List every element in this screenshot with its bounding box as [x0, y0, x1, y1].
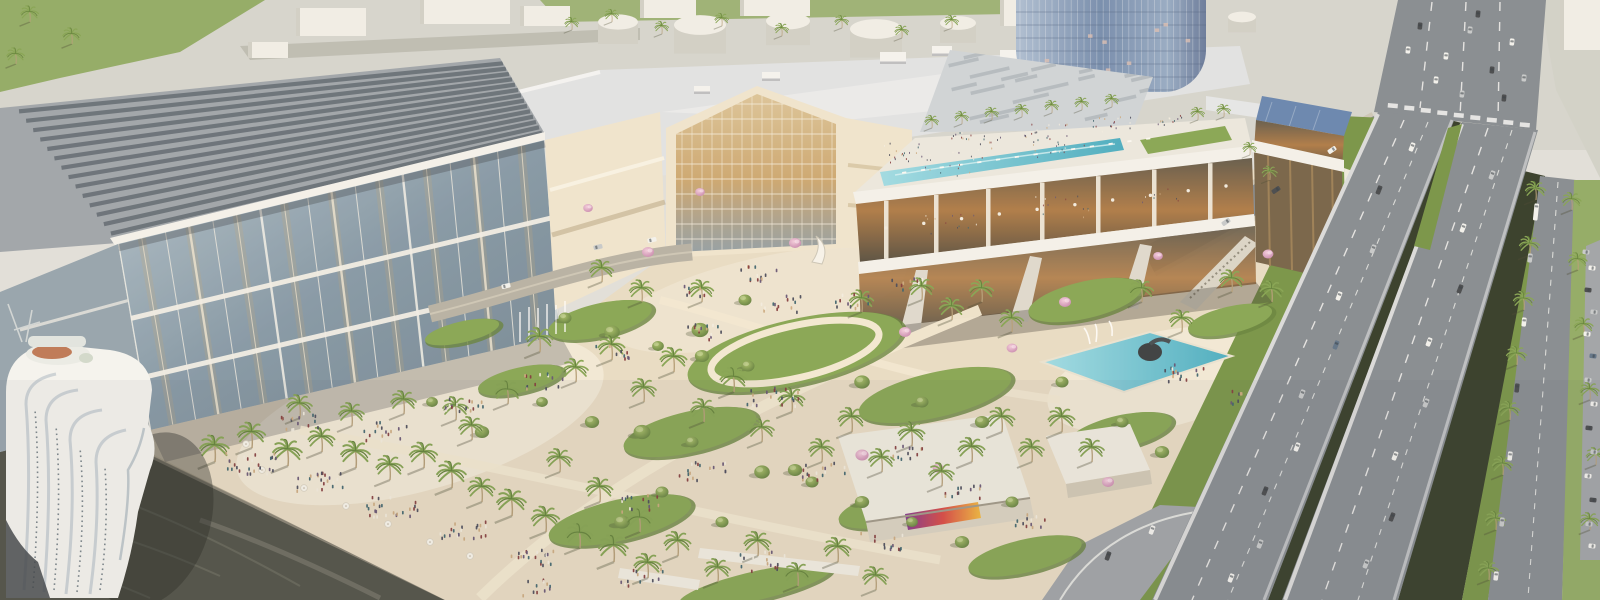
person: [687, 478, 689, 482]
person: [337, 478, 339, 482]
car: [1590, 309, 1597, 314]
person: [1059, 124, 1060, 126]
person: [254, 453, 256, 457]
person: [1000, 137, 1001, 139]
person: [966, 138, 967, 140]
person: [291, 417, 293, 421]
person: [694, 326, 696, 330]
person: [771, 550, 773, 554]
person: [631, 508, 633, 512]
person: [970, 134, 971, 136]
person: [962, 138, 963, 140]
person: [798, 397, 800, 401]
background-building: [640, 0, 696, 18]
person: [363, 430, 365, 434]
person: [1024, 135, 1025, 137]
person: [925, 167, 926, 169]
person: [1118, 118, 1119, 120]
person: [971, 156, 972, 158]
person: [1066, 124, 1067, 126]
person: [1022, 522, 1024, 526]
person: [269, 468, 271, 472]
person: [385, 514, 387, 518]
person: [1037, 129, 1038, 131]
person: [792, 397, 794, 401]
person: [365, 439, 367, 443]
person: [748, 265, 750, 269]
person: [847, 302, 849, 306]
person: [785, 388, 787, 392]
person: [1062, 149, 1063, 151]
person: [536, 591, 538, 595]
person: [764, 306, 766, 310]
person: [1241, 392, 1243, 396]
person: [1048, 135, 1049, 137]
person: [1160, 193, 1161, 195]
person: [522, 594, 524, 598]
person: [1084, 145, 1085, 147]
person: [752, 393, 754, 397]
person: [1037, 156, 1038, 158]
person: [751, 570, 753, 574]
person: [534, 383, 536, 387]
person: [369, 514, 371, 518]
background-building: [296, 8, 366, 36]
person: [539, 373, 541, 377]
person: [1030, 518, 1032, 522]
person: [449, 534, 451, 538]
person: [530, 375, 532, 379]
person: [656, 495, 658, 499]
person: [1173, 371, 1175, 375]
person: [381, 434, 383, 438]
person: [1064, 151, 1065, 153]
person: [620, 580, 622, 584]
person: [417, 509, 419, 513]
person: [893, 547, 895, 551]
person: [381, 426, 383, 430]
person: [901, 457, 903, 461]
person: [445, 406, 447, 410]
person: [536, 551, 538, 555]
person: [1230, 401, 1232, 405]
person: [469, 399, 471, 403]
person: [935, 218, 936, 220]
person: [890, 143, 891, 145]
column: [934, 195, 939, 253]
person: [768, 552, 770, 556]
tree: [634, 425, 651, 439]
person: [648, 505, 650, 509]
person: [687, 473, 689, 477]
person: [960, 486, 962, 490]
person: [441, 536, 443, 540]
person: [894, 537, 896, 541]
person: [900, 451, 902, 455]
person: [1048, 204, 1049, 206]
person: [750, 389, 752, 393]
fountain-sculpture: [1138, 343, 1162, 361]
person: [523, 555, 525, 559]
car: [1585, 425, 1592, 430]
person: [902, 445, 904, 449]
person: [902, 534, 904, 538]
person: [776, 307, 778, 311]
person: [916, 152, 917, 154]
person: [321, 488, 323, 492]
person: [323, 482, 325, 486]
person: [540, 560, 542, 564]
person: [658, 504, 660, 508]
person: [1176, 198, 1177, 200]
person: [724, 461, 726, 465]
person: [379, 421, 381, 425]
person: [460, 528, 462, 532]
person: [1177, 371, 1179, 375]
person: [874, 535, 876, 539]
person: [979, 497, 981, 501]
person: [390, 430, 392, 434]
person: [629, 507, 631, 511]
person: [910, 280, 912, 284]
person: [973, 485, 975, 489]
person: [1186, 378, 1188, 382]
car: [1590, 401, 1597, 406]
person: [1043, 205, 1044, 207]
flowering-tree: [1059, 297, 1071, 307]
person: [528, 556, 530, 560]
person: [968, 227, 969, 229]
person: [725, 470, 727, 474]
person: [381, 439, 383, 443]
person: [545, 387, 547, 391]
person: [547, 553, 549, 557]
person: [660, 568, 662, 572]
aerial-rendering: [0, 0, 1600, 600]
person: [684, 285, 686, 289]
person: [293, 428, 295, 432]
person: [1237, 399, 1239, 403]
person: [774, 566, 776, 570]
person: [1048, 124, 1049, 126]
column: [1096, 176, 1101, 234]
person: [796, 310, 798, 314]
person: [926, 215, 927, 217]
person: [689, 471, 691, 475]
person: [1175, 370, 1177, 374]
person: [263, 469, 265, 473]
person: [1162, 121, 1163, 123]
person: [950, 165, 951, 167]
person: [440, 532, 442, 536]
person: [930, 169, 931, 171]
person: [409, 507, 411, 511]
person: [750, 278, 752, 282]
person: [697, 463, 699, 467]
person: [760, 279, 762, 283]
person: [281, 416, 283, 420]
person: [803, 468, 805, 472]
person: [1102, 131, 1103, 133]
car: [1585, 521, 1592, 526]
person: [1083, 208, 1084, 210]
person: [458, 533, 460, 537]
person: [951, 137, 952, 139]
person: [953, 152, 954, 154]
person: [415, 501, 417, 505]
flowering-tree: [642, 247, 654, 257]
person: [623, 497, 625, 501]
car: [1589, 497, 1596, 502]
person: [955, 134, 956, 136]
person: [947, 491, 949, 495]
tree: [426, 397, 438, 407]
person: [1058, 141, 1059, 143]
crosswalk-bar: [1437, 110, 1447, 115]
person: [449, 404, 451, 408]
car: [1521, 74, 1526, 81]
person: [621, 510, 623, 514]
person: [657, 574, 659, 578]
person: [797, 391, 799, 395]
person: [930, 154, 931, 156]
person: [917, 279, 919, 283]
person: [1059, 151, 1060, 153]
flowering-tree: [1153, 252, 1163, 260]
crosswalk-bar: [1421, 108, 1431, 113]
person: [369, 434, 371, 438]
person: [927, 218, 928, 220]
person: [1238, 392, 1240, 396]
person: [471, 400, 473, 404]
person: [957, 175, 958, 177]
crosswalk-bar: [1520, 122, 1530, 127]
person: [526, 387, 528, 391]
person: [520, 555, 522, 559]
person: [286, 428, 288, 432]
person: [1116, 127, 1117, 129]
person: [781, 403, 783, 407]
person: [456, 403, 458, 407]
person: [229, 459, 231, 463]
person: [895, 446, 897, 450]
person: [698, 328, 700, 332]
background-building: [1560, 0, 1600, 50]
person: [945, 222, 946, 224]
person: [327, 479, 329, 483]
person: [1099, 117, 1100, 119]
person: [1130, 122, 1131, 124]
tree: [1155, 446, 1169, 458]
person: [991, 141, 992, 143]
person: [485, 534, 487, 538]
background-building: [420, 0, 510, 24]
person: [652, 579, 654, 583]
flowering-tree: [1007, 344, 1018, 353]
tree: [536, 397, 548, 407]
person: [385, 430, 387, 434]
person: [860, 532, 862, 536]
car: [1582, 249, 1589, 254]
person: [1088, 210, 1089, 212]
person: [757, 278, 759, 282]
tree: [716, 517, 729, 528]
person: [916, 453, 918, 457]
person: [1045, 198, 1046, 200]
person: [626, 351, 628, 355]
person: [1177, 118, 1178, 120]
person: [1180, 374, 1182, 378]
person: [314, 420, 316, 424]
person: [329, 476, 331, 480]
person: [543, 580, 545, 584]
person: [898, 548, 900, 552]
person: [975, 156, 976, 158]
person: [984, 138, 985, 140]
person: [470, 409, 472, 413]
car: [1493, 571, 1499, 580]
person: [868, 295, 870, 299]
person: [741, 565, 743, 569]
person: [1030, 523, 1032, 527]
person: [997, 139, 998, 141]
person: [959, 225, 960, 227]
person: [312, 413, 314, 417]
person: [1065, 147, 1066, 149]
person: [884, 145, 885, 147]
person: [867, 302, 869, 306]
person: [761, 303, 763, 307]
person: [686, 293, 688, 297]
person: [1033, 141, 1034, 143]
person: [1050, 152, 1051, 154]
person: [542, 564, 544, 568]
tree: [854, 375, 870, 388]
person: [477, 524, 479, 528]
person: [1055, 196, 1056, 198]
person: [904, 152, 905, 154]
person: [901, 284, 903, 288]
person: [1145, 196, 1146, 198]
person: [388, 433, 390, 437]
person: [1043, 213, 1044, 215]
person: [548, 561, 550, 565]
person: [836, 305, 838, 309]
car: [1475, 10, 1480, 17]
person: [536, 584, 538, 588]
person: [857, 303, 859, 307]
person: [524, 374, 526, 378]
person: [297, 486, 299, 490]
person: [959, 164, 960, 166]
person: [1160, 120, 1161, 122]
person: [958, 152, 959, 154]
person: [1164, 124, 1165, 126]
person: [558, 385, 560, 389]
person: [699, 287, 701, 291]
person: [1197, 373, 1199, 377]
person: [756, 274, 758, 278]
crosswalk-bar: [1487, 117, 1497, 122]
person: [952, 215, 953, 217]
person: [800, 295, 802, 299]
person: [1066, 135, 1067, 137]
person: [984, 135, 985, 137]
person: [919, 143, 920, 145]
person: [835, 300, 837, 304]
tree: [1006, 497, 1019, 508]
person: [700, 327, 702, 331]
background-building: [740, 0, 810, 16]
person: [973, 215, 974, 217]
person: [824, 470, 826, 474]
person: [903, 154, 904, 156]
person: [259, 466, 261, 470]
person: [703, 294, 705, 298]
person: [473, 537, 475, 541]
person: [296, 489, 298, 493]
person: [374, 430, 376, 434]
car: [1509, 38, 1514, 45]
person: [381, 504, 383, 508]
person: [480, 524, 482, 528]
column: [986, 189, 991, 247]
crosswalk-bar: [1454, 113, 1464, 118]
person: [324, 473, 326, 477]
person: [940, 172, 941, 174]
person: [791, 306, 793, 310]
tree: [975, 416, 989, 428]
person: [332, 485, 334, 489]
person: [908, 160, 909, 162]
person: [298, 416, 300, 420]
person: [696, 479, 698, 483]
car: [1417, 22, 1422, 29]
person: [274, 452, 276, 456]
tree: [906, 517, 918, 527]
tree: [1056, 377, 1069, 388]
person: [717, 325, 719, 329]
person: [695, 461, 697, 465]
person: [1058, 144, 1059, 146]
person: [767, 562, 769, 566]
person: [1026, 513, 1028, 517]
person: [770, 395, 772, 399]
tree: [739, 295, 752, 306]
person: [699, 464, 701, 468]
person: [807, 472, 809, 476]
person: [787, 298, 789, 302]
person: [781, 396, 783, 400]
person: [679, 474, 681, 478]
flowering-tree: [899, 327, 911, 337]
person: [1047, 127, 1048, 129]
person: [930, 159, 931, 161]
person: [1158, 123, 1159, 125]
person: [976, 224, 977, 226]
person: [902, 281, 904, 285]
person: [1015, 524, 1017, 528]
person: [766, 558, 768, 562]
person: [366, 504, 368, 508]
person: [270, 457, 272, 461]
person: [376, 421, 378, 425]
person: [315, 414, 317, 418]
person: [376, 515, 378, 519]
person: [248, 467, 250, 471]
person: [541, 549, 543, 553]
person: [745, 265, 747, 269]
